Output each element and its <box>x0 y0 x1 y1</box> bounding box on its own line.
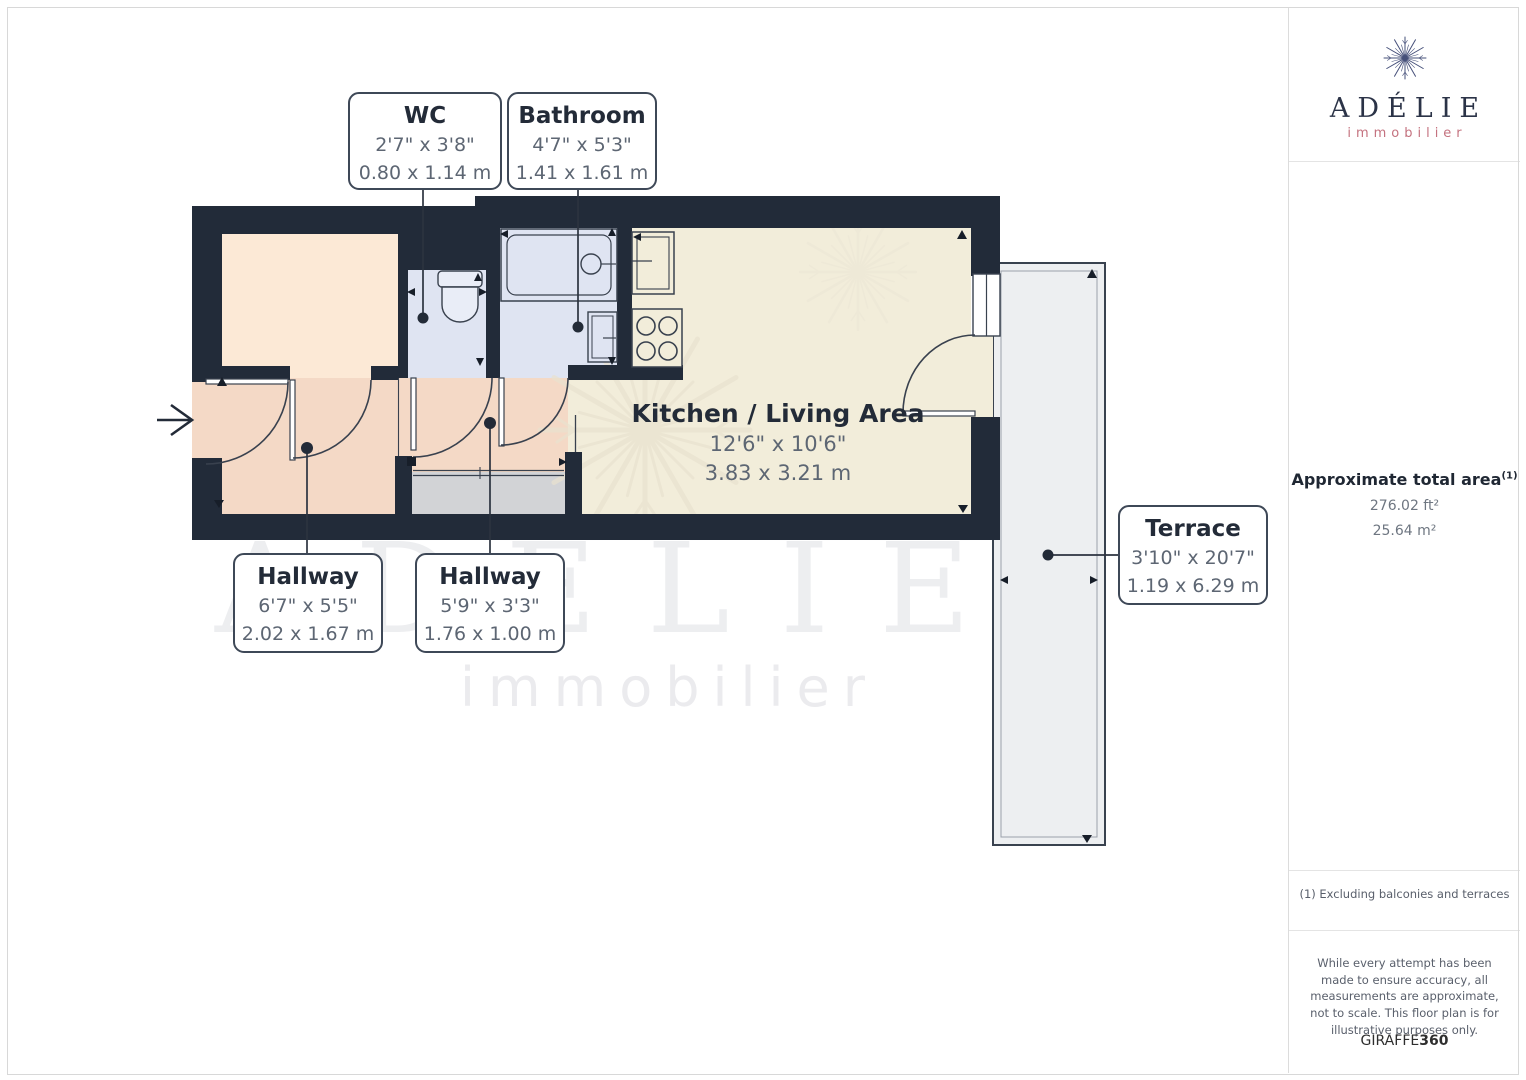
agency-logo: ADÉLIE immobilier <box>1289 35 1520 141</box>
bathroom-door-leaf <box>499 378 504 446</box>
terrace-door-panel <box>973 274 1000 336</box>
sidebar: ADÉLIE immobilier Approximate total area… <box>1288 7 1520 1073</box>
room-dims-metric: 1.19 x 6.29 m <box>1120 572 1266 600</box>
room-label-bathroom: Bathroom 4'7" x 5'3" 1.41 x 1.61 m <box>507 92 657 190</box>
footnote-text: (1) Excluding balconies and terraces <box>1289 887 1520 901</box>
bedroom-door-leaf <box>290 380 295 460</box>
room-name: Kitchen / Living Area <box>628 398 928 430</box>
entry-arrow-icon <box>157 405 192 435</box>
kitchen-sink-counter <box>632 232 674 294</box>
room-label-terrace: Terrace 3'10" x 20'7" 1.19 x 6.29 m <box>1118 505 1268 605</box>
wc-door-leaf <box>411 378 416 450</box>
bedroom-floor <box>218 230 402 378</box>
snowflake-icon <box>1382 35 1428 81</box>
room-dims-metric: 1.76 x 1.00 m <box>417 620 563 648</box>
stove <box>632 309 682 367</box>
total-area-ft: 276.02 ft² <box>1289 498 1520 514</box>
room-name: Terrace <box>1120 514 1266 544</box>
room-label-hallway-1: Hallway 6'7" x 5'5" 2.02 x 1.67 m <box>233 553 383 653</box>
divider <box>1289 870 1520 871</box>
giraffe360-logo: GIRAFFE360 <box>1289 1033 1520 1049</box>
bathroom-sink <box>588 312 617 362</box>
room-dims-imperial: 12'6" x 10'6" <box>628 430 928 459</box>
room-name: Hallway <box>417 562 563 592</box>
agency-name: ADÉLIE <box>1289 93 1520 124</box>
entry-door-leaf <box>206 379 288 384</box>
room-dims-imperial: 4'7" x 5'3" <box>509 131 655 159</box>
room-dims-metric: 3.83 x 3.21 m <box>628 459 928 488</box>
room-label-wc: WC 2'7" x 3'8" 0.80 x 1.14 m <box>348 92 502 190</box>
room-dims-imperial: 2'7" x 3'8" <box>350 131 500 159</box>
room-name: WC <box>350 101 500 131</box>
room-dims-imperial: 5'9" x 3'3" <box>417 592 563 620</box>
room-dims-imperial: 6'7" x 5'5" <box>235 592 381 620</box>
total-area-label: Approximate total area(1) <box>1289 470 1520 489</box>
divider <box>1289 930 1520 931</box>
floor-plan-page: ADELIE immobilier <box>0 0 1526 1080</box>
disclaimer-text: While every attempt has been made to ens… <box>1303 955 1506 1038</box>
total-area-m: 25.64 m² <box>1289 523 1520 539</box>
room-name: Bathroom <box>509 101 655 131</box>
footnote-marker: (1) <box>1501 471 1517 482</box>
agency-tagline: immobilier <box>1289 126 1520 141</box>
room-dims-metric: 2.02 x 1.67 m <box>235 620 381 648</box>
entry-gap-floor <box>192 382 222 458</box>
closet-floor <box>412 472 565 514</box>
room-label-hallway-2: Hallway 5'9" x 3'3" 1.76 x 1.00 m <box>415 553 565 653</box>
total-area-block: Approximate total area(1) 276.02 ft² 25.… <box>1289 470 1520 539</box>
room-label-kitchen-living: Kitchen / Living Area 12'6" x 10'6" 3.83… <box>628 398 928 488</box>
room-dims-metric: 1.41 x 1.61 m <box>509 159 655 187</box>
room-dims-imperial: 3'10" x 20'7" <box>1120 544 1266 572</box>
room-name: Hallway <box>235 562 381 592</box>
divider <box>1289 161 1520 162</box>
room-dims-metric: 0.80 x 1.14 m <box>350 159 500 187</box>
